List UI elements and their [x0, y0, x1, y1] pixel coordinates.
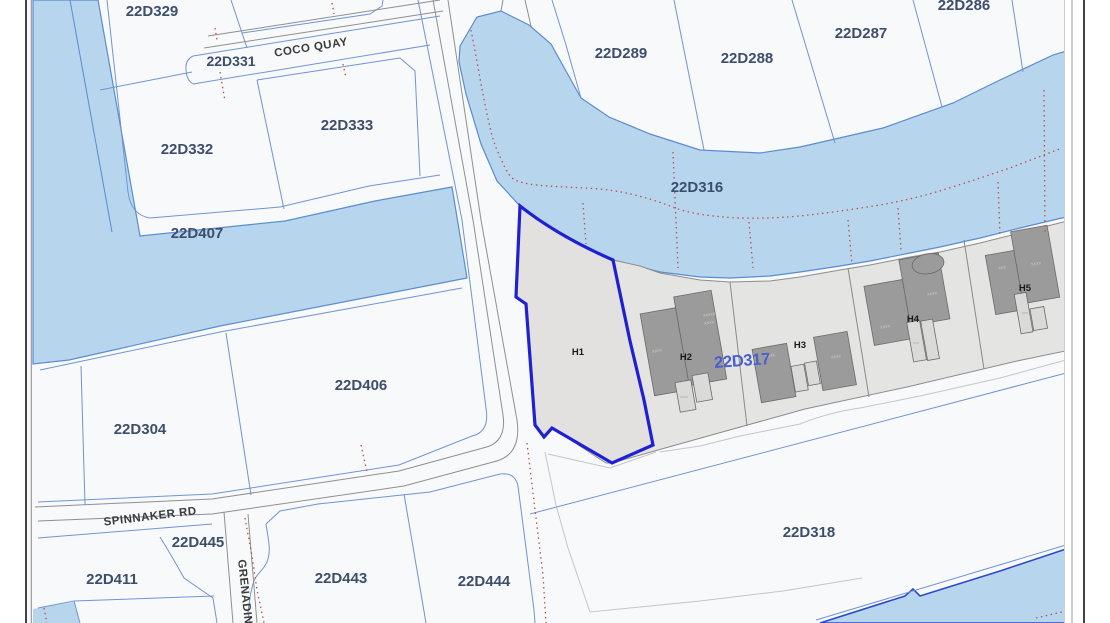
- svg-text:xxx: xxx: [1022, 310, 1028, 315]
- svg-text:22D407: 22D407: [171, 225, 224, 242]
- svg-text:22D289: 22D289: [595, 45, 648, 62]
- svg-text:xxx: xxx: [913, 340, 919, 345]
- svg-text:22D304: 22D304: [114, 421, 167, 438]
- svg-text:H5: H5: [1019, 283, 1032, 294]
- svg-text:22D287: 22D287: [835, 25, 888, 42]
- svg-text:H2: H2: [680, 352, 692, 363]
- svg-text:22D332: 22D332: [161, 141, 214, 158]
- svg-text:22D333: 22D333: [321, 117, 374, 134]
- svg-text:22D411: 22D411: [86, 571, 138, 588]
- svg-text:xxxx: xxxx: [680, 394, 688, 399]
- svg-text:22D316: 22D316: [671, 179, 724, 196]
- svg-text:22D286: 22D286: [938, 0, 991, 14]
- svg-text:H3: H3: [794, 340, 806, 351]
- svg-text:H4: H4: [907, 314, 920, 325]
- svg-text:22D445: 22D445: [172, 534, 225, 551]
- svg-text:22D444: 22D444: [458, 573, 511, 590]
- svg-text:22D406: 22D406: [335, 377, 388, 394]
- svg-text:22D331: 22D331: [206, 53, 255, 69]
- svg-text:22D443: 22D443: [315, 570, 368, 587]
- svg-text:H1: H1: [572, 347, 585, 358]
- svg-text:22D329: 22D329: [126, 3, 179, 20]
- svg-text:22D318: 22D318: [783, 524, 836, 541]
- svg-text:22D288: 22D288: [721, 50, 774, 67]
